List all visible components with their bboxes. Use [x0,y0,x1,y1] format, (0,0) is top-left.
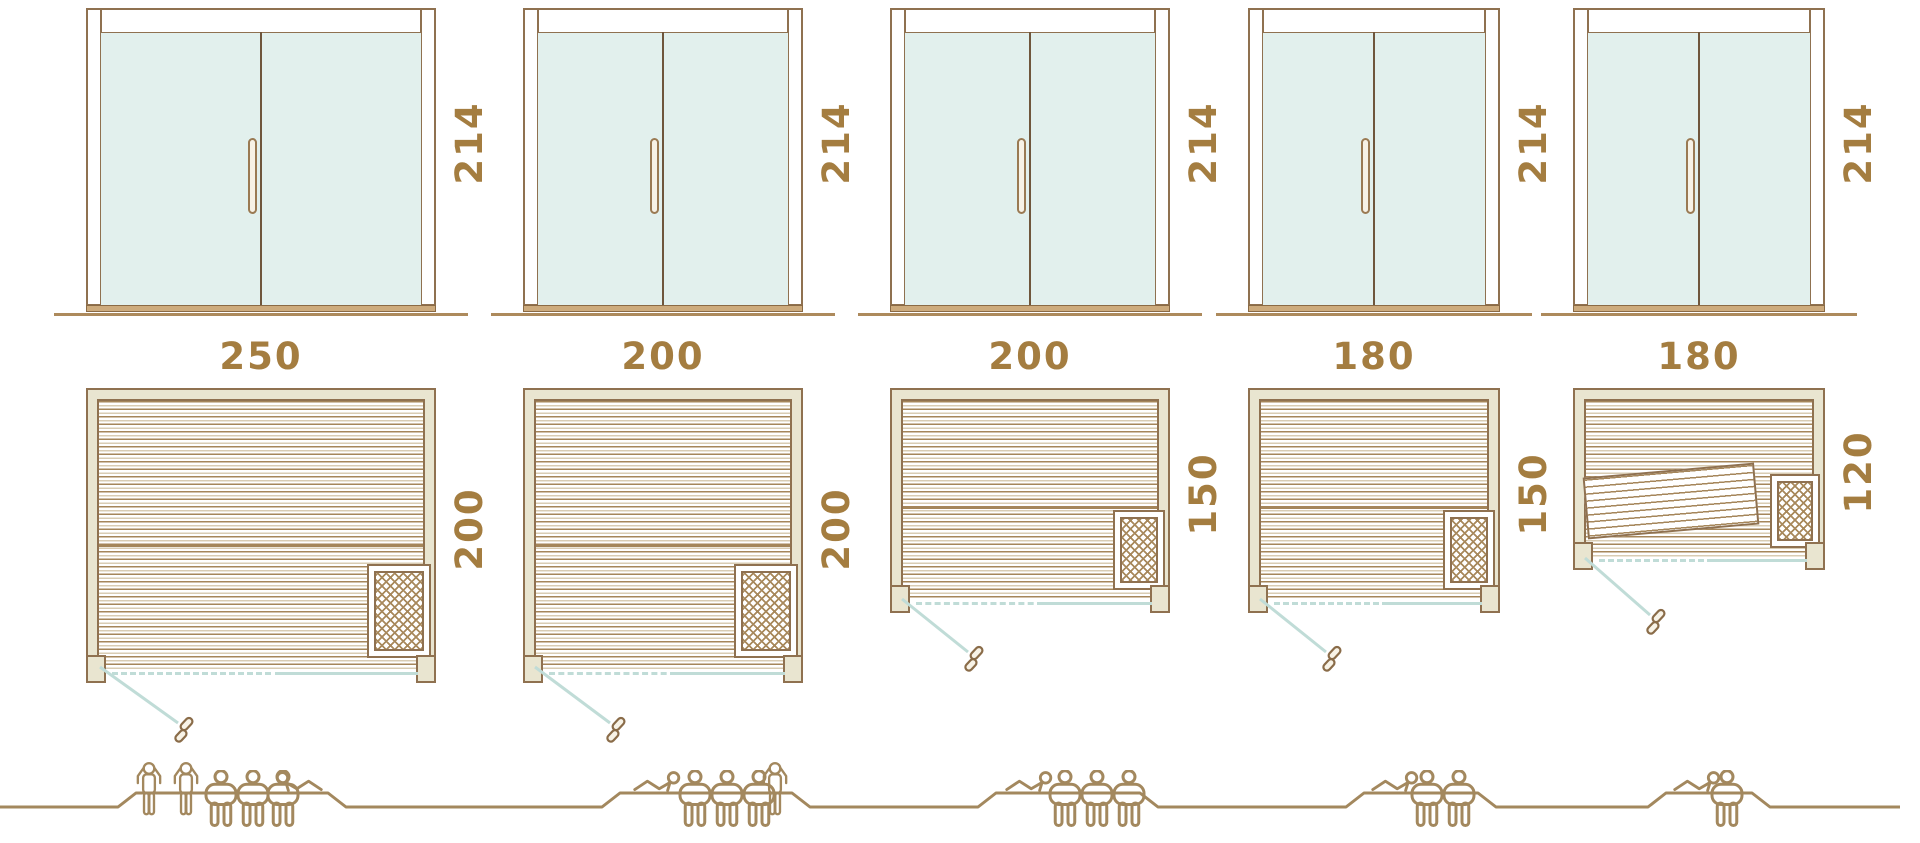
ground-line [1216,313,1532,316]
plan-width-dimension: 250 [86,334,436,378]
sauna-size-diagram: 214 250 200 214 200 [0,0,1920,843]
door-threshold-solid [1709,559,1807,562]
door-jamb-left [1573,542,1593,570]
floor-plan [86,388,436,670]
door-jamb-left [523,655,543,683]
door-height-dimension: 214 [1803,112,1913,174]
plan-depth-dimension: 120 [1803,441,1913,503]
door-threshold-dashed [112,672,271,675]
door-divider [1029,32,1031,306]
door-height-dimension: 214 [1148,112,1258,174]
person-lying-icon [1373,773,1417,791]
bench-edge-line [903,506,1157,509]
plan-width-dimension: 200 [890,334,1170,378]
door-threshold-solid [1041,602,1152,605]
door-jamb-left [86,655,106,683]
person-standing-icon [138,763,160,814]
person-seated-icon [238,771,268,826]
door-sill [1248,305,1500,312]
door-threshold-dashed [1599,559,1713,562]
plan-depth-dimension: 200 [781,498,891,560]
door-threshold-dashed [916,602,1043,605]
sauna-column-250x200: 214 250 200 [86,0,436,843]
door-handle [248,138,257,214]
door-frame-header [100,8,422,34]
ground-line [858,313,1202,316]
person-lying-icon [635,773,679,791]
door-elevation [1248,8,1500,312]
door-sill [890,305,1170,312]
door-elevation [523,8,803,312]
capacity-group-5 [1675,771,1742,826]
ground-line [1541,313,1857,316]
door-threshold-solid [674,672,785,675]
door-jamb-right [1150,585,1170,613]
door-threshold-solid [1384,602,1482,605]
door-handle [1017,138,1026,214]
plan-width-dimension: 200 [523,334,803,378]
capacity-strip [0,745,1920,843]
plan-width-dimension: 180 [1573,334,1825,378]
door-elevation [890,8,1170,312]
capacity-group-4 [1373,771,1474,826]
plan-depth-dimension: 150 [1148,463,1258,525]
heater [367,564,431,658]
door-glass-left [1262,32,1374,306]
door-glass-right [1374,32,1486,306]
person-seated-icon [1712,771,1742,826]
door-height-dimension: 214 [1478,112,1588,174]
floor-plan [523,388,803,670]
door-handle [1686,138,1695,214]
sauna-column-180x120: 214 180 120 [1573,0,1825,843]
heater-grid [374,571,424,651]
person-seated-icon [712,771,742,826]
person-seated-icon [1444,771,1474,826]
door-height-dimension: 214 [414,112,524,174]
door-elevation [1573,8,1825,312]
door-height-dimension: 214 [781,112,891,174]
heater [734,564,798,658]
floor-plan [890,388,1170,600]
bench-edge-line [1261,506,1487,509]
person-seated-icon [680,771,710,826]
door-frame-header [1587,8,1811,34]
door-jamb-left [890,585,910,613]
door-threshold-dashed [549,672,676,675]
door-frame-header [904,8,1156,34]
door-frame-header [537,8,789,34]
door-jamb-left [1248,585,1268,613]
sauna-column-200x200: 214 200 200 [523,0,803,843]
person-lying-icon [1007,773,1051,791]
sauna-column-180x150: 214 180 150 [1248,0,1500,843]
person-seated-icon [206,771,236,826]
heater-grid [741,571,791,651]
plan-depth-dimension: 200 [414,498,524,560]
door-divider [1698,32,1700,306]
person-seated-icon [1114,771,1144,826]
door-handle [1361,138,1370,214]
bench-edge-line [536,544,790,547]
door-jamb-right [1805,542,1825,570]
door-glass-left [1587,32,1699,306]
door-divider [662,32,664,306]
door-sill [523,305,803,312]
heater-grid [1120,517,1158,583]
door-glass-right [1030,32,1156,306]
door-handle [650,138,659,214]
person-standing-icon [175,763,197,814]
door-jamb-right [1480,585,1500,613]
door-divider [260,32,262,306]
plan-width-dimension: 180 [1248,334,1500,378]
door-glass-left [537,32,663,306]
capacity-group-3 [1007,771,1144,826]
person-standing-icon [764,763,786,814]
door-elevation [86,8,436,312]
bench-edge-line [99,544,423,547]
door-threshold-dashed [1274,602,1388,605]
heater-grid [1450,517,1488,583]
plan-depth-dimension: 150 [1478,463,1588,525]
door-glass-right [261,32,422,306]
door-frame-header [1262,8,1486,34]
door-jamb-right [783,655,803,683]
floor-plan [1248,388,1500,600]
floor-plan [1573,388,1825,557]
ground-line [54,313,468,316]
ground-line [491,313,835,316]
door-sill [86,305,436,312]
person-seated-icon [1082,771,1112,826]
door-jamb-right [416,655,436,683]
door-glass-right [1699,32,1811,306]
door-glass-left [904,32,1030,306]
person-lying-right-icon [277,773,321,791]
person-seated-icon [1050,771,1080,826]
person-seated-icon [268,771,298,826]
door-threshold-solid [275,672,418,675]
door-glass-left [100,32,261,306]
door-glass-right [663,32,789,306]
door-divider [1373,32,1375,306]
sauna-column-200x150: 214 200 150 [890,0,1170,843]
door-sill [1573,305,1825,312]
